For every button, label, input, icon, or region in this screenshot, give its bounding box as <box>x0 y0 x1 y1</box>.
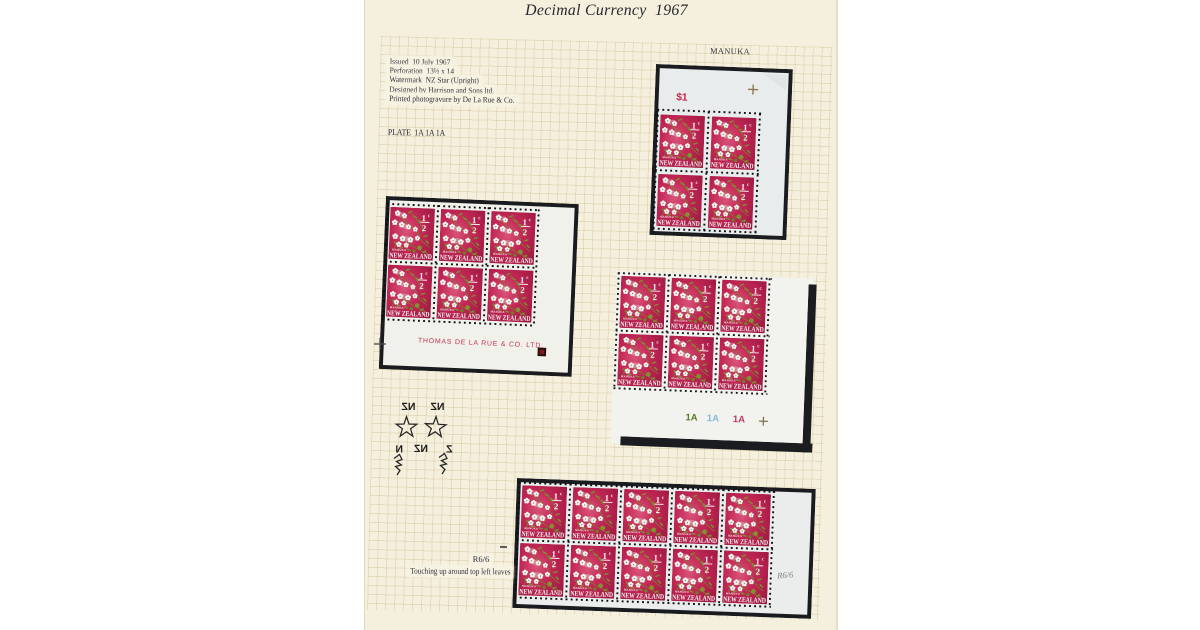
svg-text:NZ: NZ <box>413 443 428 455</box>
svg-text:R6/6: R6/6 <box>776 569 795 580</box>
svg-text:$1: $1 <box>676 91 688 103</box>
svg-text:1A: 1A <box>685 412 698 423</box>
svg-text:N: N <box>395 444 403 456</box>
svg-text:NZ: NZ <box>401 401 416 413</box>
svg-text:Z: Z <box>446 444 453 456</box>
svg-text:NZ: NZ <box>430 401 445 413</box>
svg-text:1A: 1A <box>733 414 746 425</box>
svg-text:1A: 1A <box>707 413 720 424</box>
